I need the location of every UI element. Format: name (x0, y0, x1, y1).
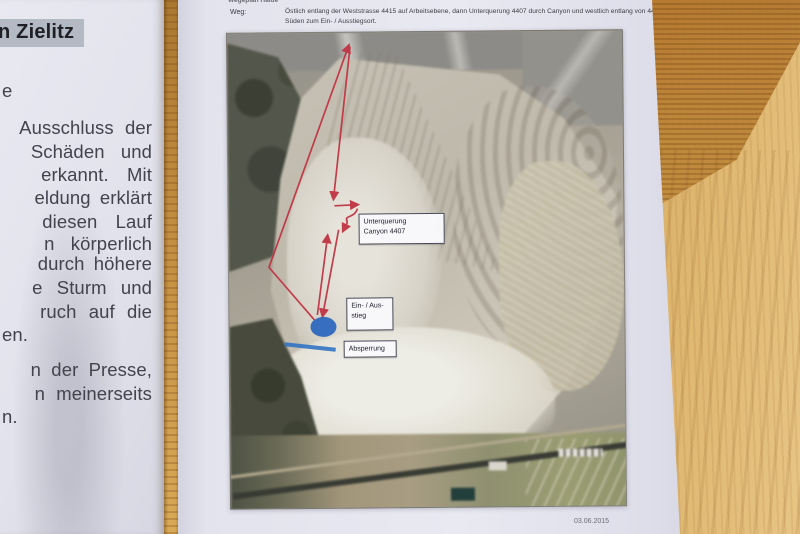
weg-label: Weg: (230, 9, 246, 16)
left-text-line: Ausschluss der (19, 117, 152, 139)
left-text-line: n körperlich (44, 233, 152, 255)
red-arrow-underpass (334, 205, 358, 206)
photographed-document-scene: { "left_page": { "highlight_title": "n Z… (0, 0, 800, 534)
left-text-line: n. (2, 406, 18, 428)
aerial-photo-tailings-pile: Unterquerung Canyon 4407 Ein- / Aus- sti… (226, 29, 627, 509)
blue-barrier-line (285, 344, 336, 350)
left-text-line: durch höhere (38, 253, 152, 275)
route-plan-page: Wegeplan Halde Weg: Östlich entlang der … (178, 0, 690, 534)
left-text-line: diesen Lauf (42, 211, 152, 233)
label-text: stieg (351, 311, 388, 321)
left-text-line: Schäden und (31, 141, 152, 163)
red-route-canyon-hook (342, 209, 357, 232)
wood-grain-streaks (660, 150, 800, 534)
label-absperrung: Absperrung (344, 340, 397, 357)
left-text-line: erkannt. Mit (41, 164, 152, 186)
left-text-line: e Sturm und (32, 277, 152, 299)
route-annotation-drawing (227, 30, 627, 509)
highlighted-title-fragment: n Zielitz (0, 19, 84, 47)
left-document-page: n Zielitz e Ausschluss der Schäden und e… (0, 0, 164, 534)
left-text-line: n meinerseits (35, 383, 152, 405)
left-text-line: e (2, 80, 12, 102)
left-text-line: n der Presse, (31, 359, 152, 381)
red-route-from-exit-up (317, 235, 329, 315)
label-ein-ausstieg: Ein- / Aus- stieg (346, 297, 393, 330)
page-header-fragment: Wegeplan Halde (228, 0, 278, 4)
red-route-up-west-road (267, 45, 351, 321)
footer-date: 03.06.2015 (574, 518, 609, 525)
weg-description-line1: Östlich entlang der Weststrasse 4415 auf… (285, 8, 690, 15)
label-text: Ein- / Aus- (351, 301, 388, 311)
label-text: Unterquerung (364, 217, 440, 228)
label-unterquerung-canyon: Unterquerung Canyon 4407 (359, 213, 445, 245)
label-text: Canyon 4407 (364, 227, 440, 238)
red-route-descent (332, 47, 351, 200)
weg-description-line2: Süden zum Ein- / Ausstiegsort. (285, 18, 377, 25)
table-gap-between-pages (163, 0, 180, 534)
left-text-line: eldung erklärt (35, 187, 153, 209)
label-text: Absperrung (349, 344, 392, 354)
left-text-line: ruch auf die (40, 301, 152, 323)
red-route-to-exit (322, 230, 340, 317)
left-text-line: en. (2, 324, 28, 346)
